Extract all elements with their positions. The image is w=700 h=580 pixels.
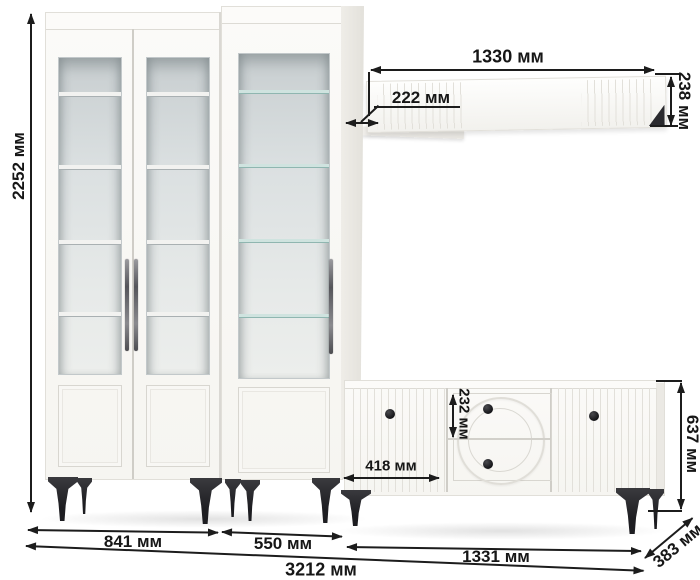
glass-shelf-line <box>239 314 329 318</box>
arrowhead-up-icon <box>677 382 685 393</box>
cabinet-top-panel <box>222 7 342 24</box>
drawer-circle-inner <box>468 408 532 472</box>
arrowhead-left-icon <box>27 526 38 534</box>
dim-line-shelf-height <box>670 77 672 125</box>
door-handle <box>125 259 129 351</box>
dim-label-total-width: 3212 мм <box>285 560 357 580</box>
door-handle <box>134 259 138 351</box>
glass-shelf-line <box>239 164 329 168</box>
arrowhead-down-icon <box>27 502 35 513</box>
door-handle <box>329 259 333 354</box>
glass-shelf-line <box>239 239 329 243</box>
drawer-knob-bottom <box>483 459 493 469</box>
lower-door-panel <box>58 385 122 467</box>
dim-label-total-height: 2252 мм <box>9 132 29 200</box>
arrowhead-left-icon <box>345 119 356 127</box>
dim-line-total-height <box>30 14 32 512</box>
furniture-dimension-diagram: 2252 мм 1330 мм 238 мм 222 мм 232 мм 418… <box>0 0 700 580</box>
shelf-line <box>59 312 121 317</box>
arrowhead-left-icon <box>370 66 381 74</box>
tv-door-seam <box>446 388 448 492</box>
dim-label-shelf-width: 1330 мм <box>472 47 544 68</box>
dim-line-tv-door-width <box>344 477 439 479</box>
tv-door-right <box>552 388 657 492</box>
shelf-line <box>59 92 121 97</box>
dim-line-shelf-depth <box>346 122 378 124</box>
lower-door-panel <box>238 387 330 473</box>
cabinet-top-panel <box>46 13 220 30</box>
cabinet-tall-double <box>45 12 221 480</box>
lower-door-panel <box>146 385 210 467</box>
arrowhead-left-icon <box>346 543 357 551</box>
tv-door-knob-right <box>589 411 599 421</box>
shelf-line <box>147 240 209 245</box>
dim-label-right-cabinet-width: 550 мм <box>254 534 312 554</box>
arrowhead-right-icon <box>368 119 379 127</box>
glass-door-right <box>146 57 210 375</box>
arrowhead-right-icon <box>208 529 219 537</box>
dim-label-tv-height: 637 мм <box>682 415 700 473</box>
arrowhead-right-icon <box>429 474 440 482</box>
shelf-groove-pattern-right <box>581 79 652 126</box>
arrowhead-left-icon <box>221 528 232 536</box>
dim-tick <box>648 510 682 512</box>
glass-door-left <box>58 57 122 375</box>
shelf-line <box>147 92 209 97</box>
dim-extension-line <box>368 72 370 116</box>
arrowhead-right-icon <box>633 566 644 574</box>
door-seam <box>132 29 134 479</box>
glass-door-wide <box>238 53 330 379</box>
shelf-line <box>147 312 209 317</box>
dim-leader-underline <box>374 106 460 108</box>
dim-label-drawer-height: 232 мм <box>456 388 473 439</box>
arrowhead-up-icon <box>27 13 35 24</box>
drawer-knob-top <box>483 404 493 414</box>
arrowhead-right-icon <box>631 547 642 555</box>
shelf-line <box>147 165 209 170</box>
dim-line-shelf-width <box>371 69 654 71</box>
glass-shelf-line <box>239 90 329 94</box>
arrowhead-right-icon <box>644 66 655 74</box>
dim-label-shelf-height: 238 мм <box>674 72 694 130</box>
shelf-line <box>59 240 121 245</box>
shelf-line <box>59 165 121 170</box>
floor-shadow-tv-stand <box>334 522 670 540</box>
dim-label-tv-door-width: 418 мм <box>365 458 416 475</box>
dim-line-drawer-height <box>452 395 454 437</box>
cabinet-tall-single <box>221 6 343 480</box>
tv-stand-side-face <box>656 383 664 493</box>
leg <box>77 478 92 514</box>
arrowhead-left-icon <box>25 542 36 550</box>
arrowhead-right-icon <box>332 532 343 540</box>
tv-door-knob-left <box>385 409 395 419</box>
dim-label-shelf-depth: 222 мм <box>392 88 450 108</box>
arrowhead-down-icon <box>677 499 685 510</box>
arrowhead-left-icon <box>343 474 354 482</box>
